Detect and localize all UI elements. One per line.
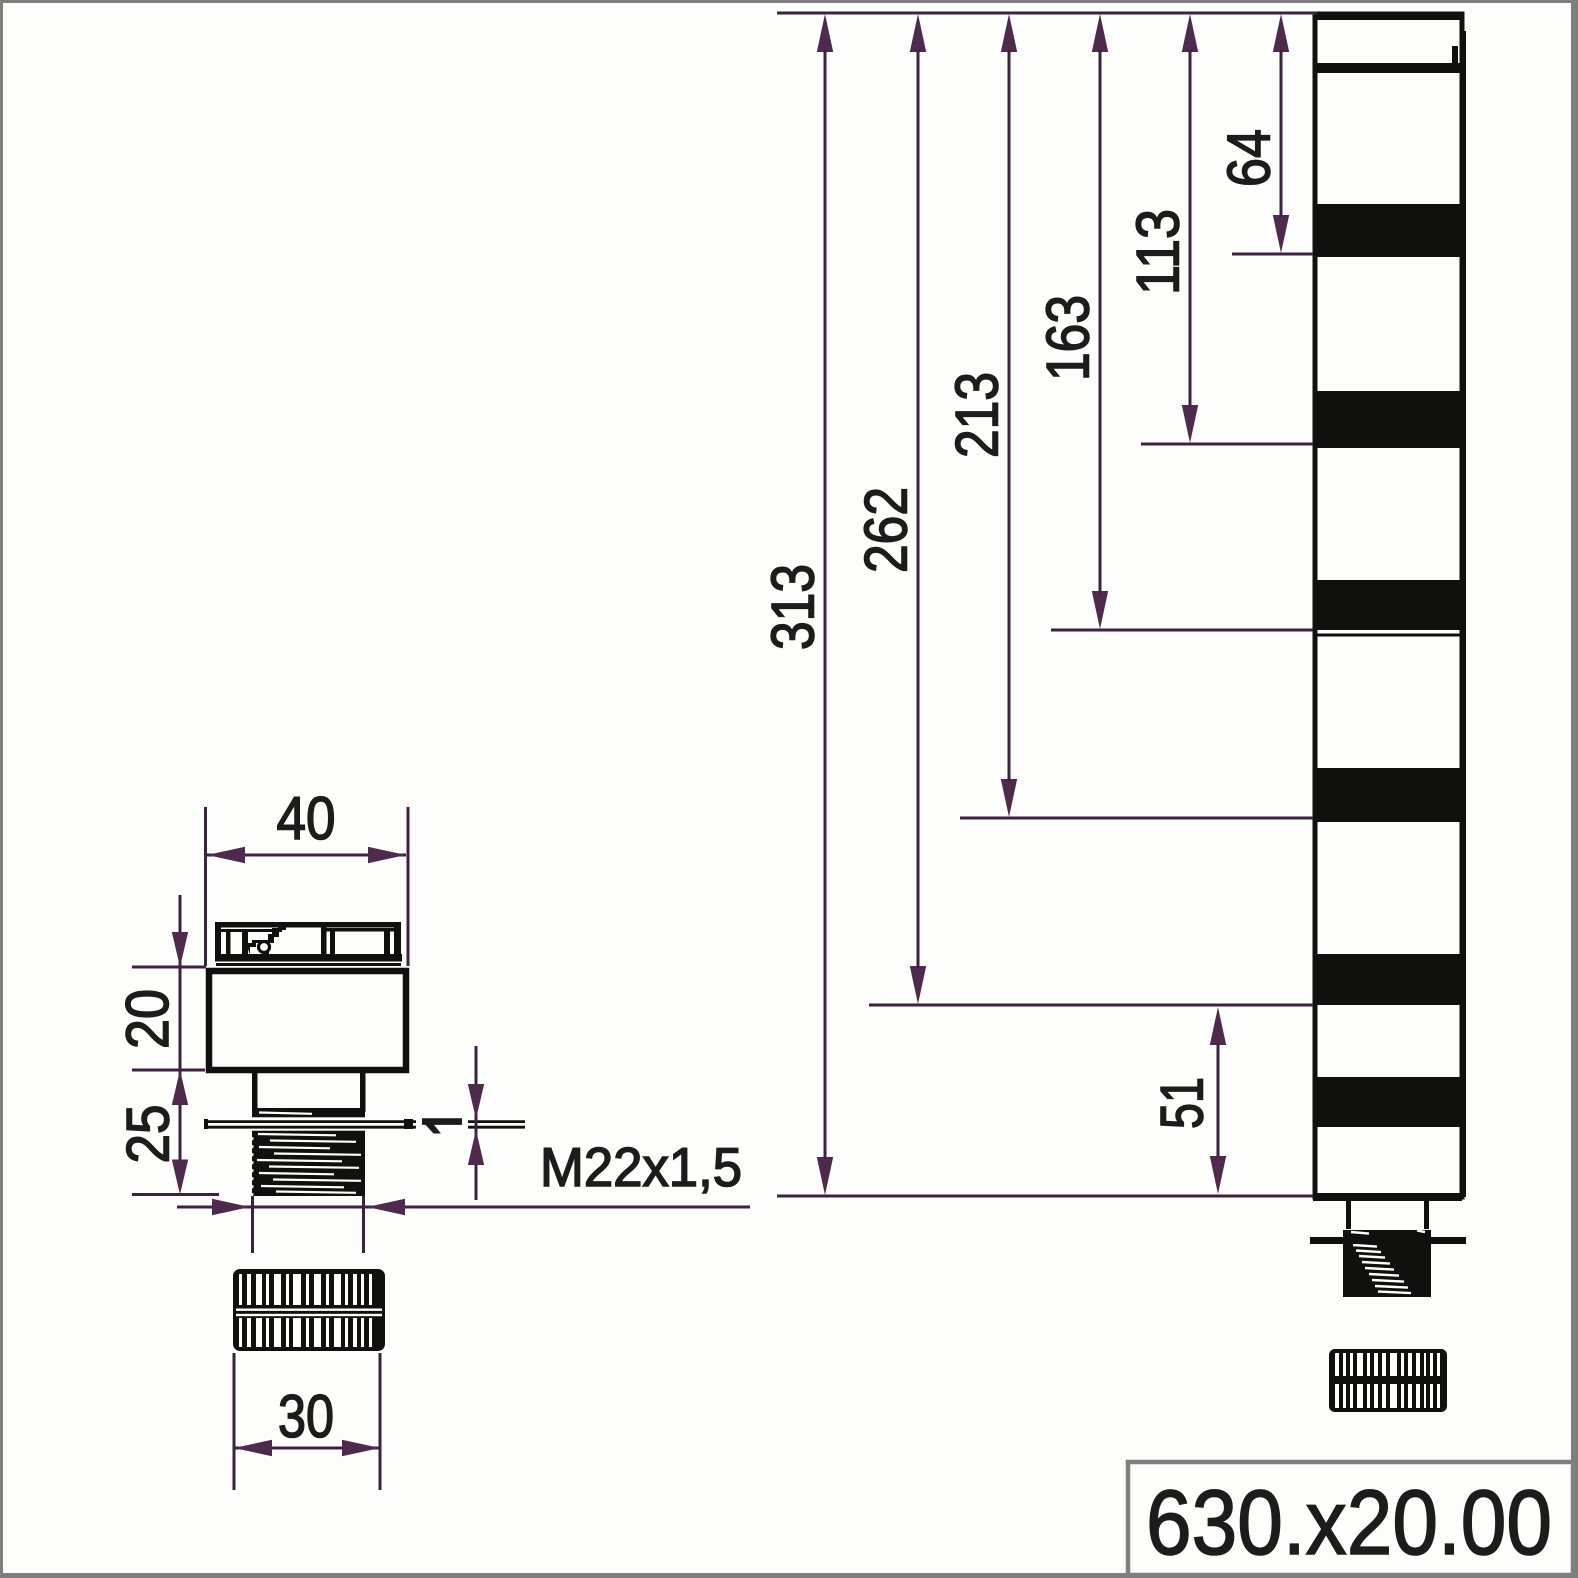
svg-text:262: 262 (853, 487, 920, 573)
svg-text:51: 51 (1149, 1077, 1216, 1129)
svg-text:40: 40 (277, 785, 336, 852)
svg-text:630.x20.00: 630.x20.00 (1146, 1472, 1552, 1574)
svg-text:M22x1,5: M22x1,5 (540, 1137, 742, 1198)
svg-text:64: 64 (1216, 129, 1283, 187)
svg-text:163: 163 (1035, 295, 1102, 381)
svg-text:313: 313 (760, 564, 827, 650)
svg-text:30: 30 (278, 1383, 334, 1450)
svg-text:213: 213 (944, 372, 1011, 458)
svg-text:25: 25 (115, 1105, 182, 1164)
svg-text:113: 113 (1125, 209, 1192, 295)
svg-text:20: 20 (114, 989, 181, 1049)
